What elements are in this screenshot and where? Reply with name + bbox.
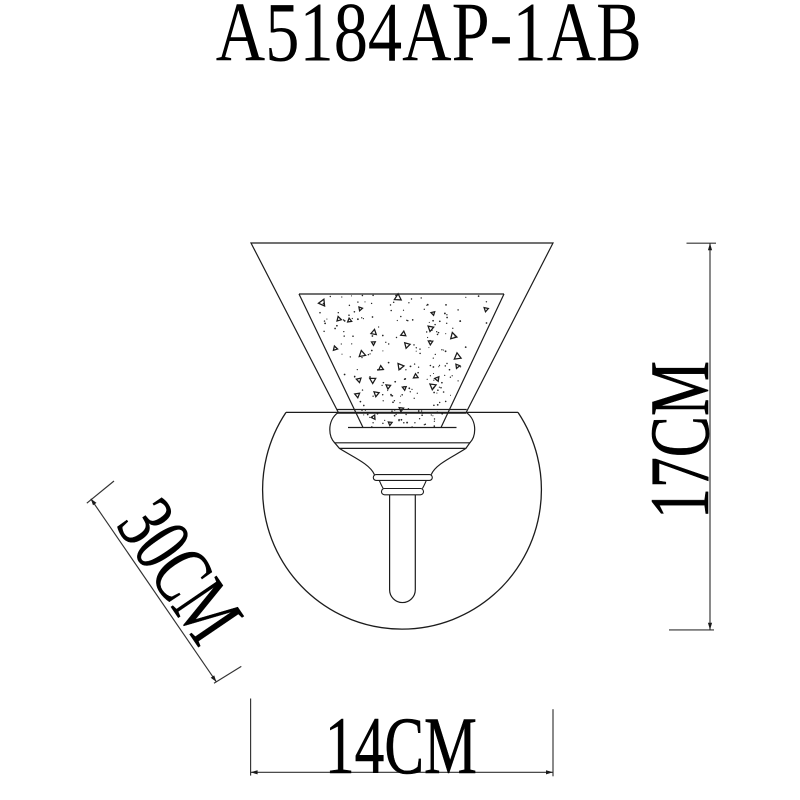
svg-text:A5184AP-1AB: A5184AP-1AB <box>216 0 642 79</box>
svg-text:17CM: 17CM <box>633 361 727 519</box>
svg-text:14CM: 14CM <box>325 700 477 791</box>
